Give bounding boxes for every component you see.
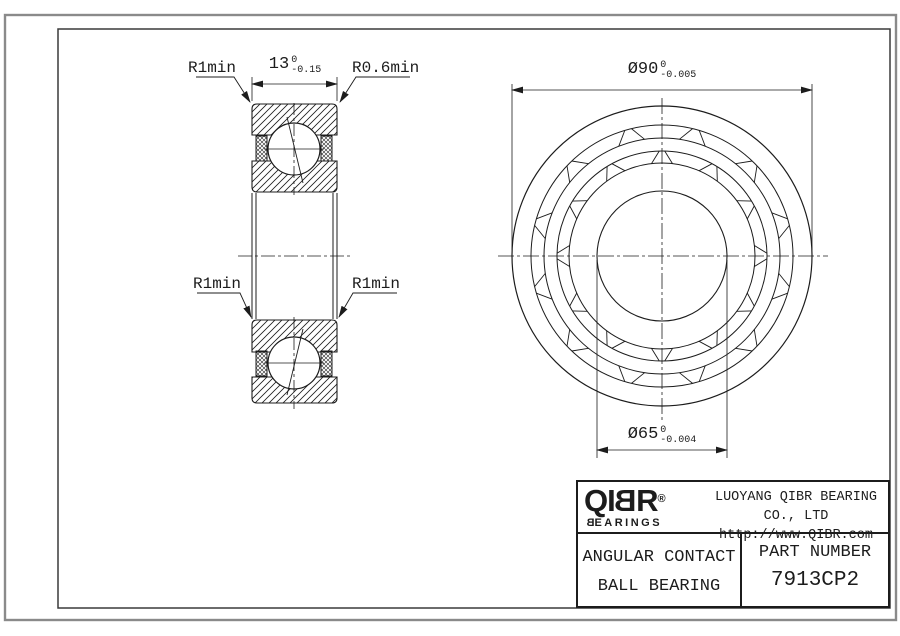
bore-diameter-value: Ø65 <box>628 426 659 444</box>
product-name-line1: ANGULAR CONTACT <box>578 543 740 572</box>
bore-tol-lower: -0.004 <box>660 436 696 446</box>
cage-block-top-left <box>256 136 267 161</box>
part-number-label: PART NUMBER <box>742 543 888 562</box>
logo-sub-mirrored-letter: B <box>584 517 594 529</box>
company-name: LUOYANG QIBR BEARING CO., LTD <box>704 488 888 526</box>
cage-pocket-divider <box>612 341 625 348</box>
cage-pocket-divider <box>747 206 754 219</box>
label-r1min-top-left: R1min <box>188 59 236 77</box>
cage-pocket-divider <box>570 293 577 306</box>
cage-pocket-divider <box>572 161 589 164</box>
engineering-drawing: R1min R0.6min R1min R1min 13 0 -0.15 Ø90… <box>0 0 900 636</box>
bore-diameter-text: Ø65 0 -0.004 <box>592 426 732 446</box>
label-r06min-top-right: R0.6min <box>352 59 419 77</box>
cage-pocket-divider <box>652 151 660 164</box>
cage-pocket-divider <box>679 129 692 140</box>
logo-sub-rest: EARINGS <box>594 517 662 529</box>
cage-pocket-divider <box>736 348 753 351</box>
cage-pocket-divider <box>567 166 570 183</box>
outer-diameter-tolerance: 0 -0.005 <box>660 61 696 81</box>
cage-pocket-divider <box>736 161 753 164</box>
outer-tol-lower: -0.005 <box>660 71 696 81</box>
cage-pocket-divider <box>535 273 546 286</box>
cage-pocket-divider <box>570 206 577 219</box>
cage-pocket-divider <box>754 330 757 347</box>
logo-part2: R <box>636 483 657 518</box>
leader-r1min-top-left <box>196 77 250 102</box>
leader-r1min-mid-right <box>339 293 397 317</box>
leader-r06min-top-right <box>340 77 410 102</box>
cage-pocket-divider <box>754 259 767 267</box>
section-view <box>196 77 410 409</box>
cage-pocket-divider <box>699 341 712 348</box>
product-name-line2: BALL BEARING <box>578 572 740 601</box>
cage-pocket-divider <box>665 151 673 164</box>
front-view <box>498 84 828 458</box>
cage-pocket-divider <box>747 293 754 306</box>
cage-pocket-divider <box>612 164 625 171</box>
cage-pocket-divider <box>535 225 546 238</box>
company-info: LUOYANG QIBR BEARING CO., LTD http://www… <box>704 482 888 532</box>
label-r1min-mid-left: R1min <box>193 275 241 293</box>
width-dimension-lines <box>252 77 337 101</box>
width-tol-lower: -0.15 <box>291 66 321 76</box>
cage-pocket-divider <box>557 259 570 267</box>
cage-pocket-divider <box>557 246 570 254</box>
bore-diameter-tolerance: 0 -0.004 <box>660 426 696 446</box>
cage-pocket-divider <box>665 348 673 361</box>
part-number-value: 7913CP2 <box>742 569 888 592</box>
cage-pocket-divider <box>754 246 767 254</box>
label-r1min-mid-right: R1min <box>352 275 400 293</box>
logo-mirrored-letter: B <box>615 486 636 516</box>
cage-pocket-divider <box>779 273 790 286</box>
title-block-header-row: QIBR® BEARINGS LUOYANG QIBR BEARING CO.,… <box>578 482 888 534</box>
outer-diameter-text: Ø90 0 -0.005 <box>592 61 732 81</box>
company-logo: QIBR® BEARINGS <box>578 482 704 532</box>
outer-diameter-value: Ø90 <box>628 61 659 79</box>
cage-pocket-divider <box>754 166 757 183</box>
leader-r1min-mid-left <box>197 293 251 317</box>
part-number-cell: PART NUMBER 7913CP2 <box>742 534 888 608</box>
logo-part1: QI <box>584 483 615 518</box>
logo-subtitle: BEARINGS <box>584 517 704 529</box>
product-name-cell: ANGULAR CONTACT BALL BEARING <box>578 534 742 608</box>
cage-pocket-divider <box>567 330 570 347</box>
cage-pocket-divider <box>631 129 644 140</box>
cage-block-top-right <box>321 136 332 161</box>
logo-wordmark: QIBR® <box>584 484 704 516</box>
cage-pocket-divider <box>699 164 712 171</box>
cage-pocket-divider <box>652 348 660 361</box>
width-dimension-text: 13 0 -0.15 <box>240 56 350 76</box>
title-block: QIBR® BEARINGS LUOYANG QIBR BEARING CO.,… <box>576 480 890 608</box>
title-block-detail-row: ANGULAR CONTACT BALL BEARING PART NUMBER… <box>578 534 888 608</box>
cage-pocket-divider <box>572 348 589 351</box>
cage-block-bottom-left <box>256 351 267 376</box>
cage-pocket-divider <box>779 225 790 238</box>
width-dimension-value: 13 <box>269 56 289 74</box>
cage-pocket-divider <box>631 373 644 384</box>
cage-block-bottom-right <box>321 351 332 376</box>
width-dimension-tolerance: 0 -0.15 <box>291 56 321 76</box>
cage-pocket-divider <box>679 373 692 384</box>
registered-trademark-icon: ® <box>658 493 666 505</box>
